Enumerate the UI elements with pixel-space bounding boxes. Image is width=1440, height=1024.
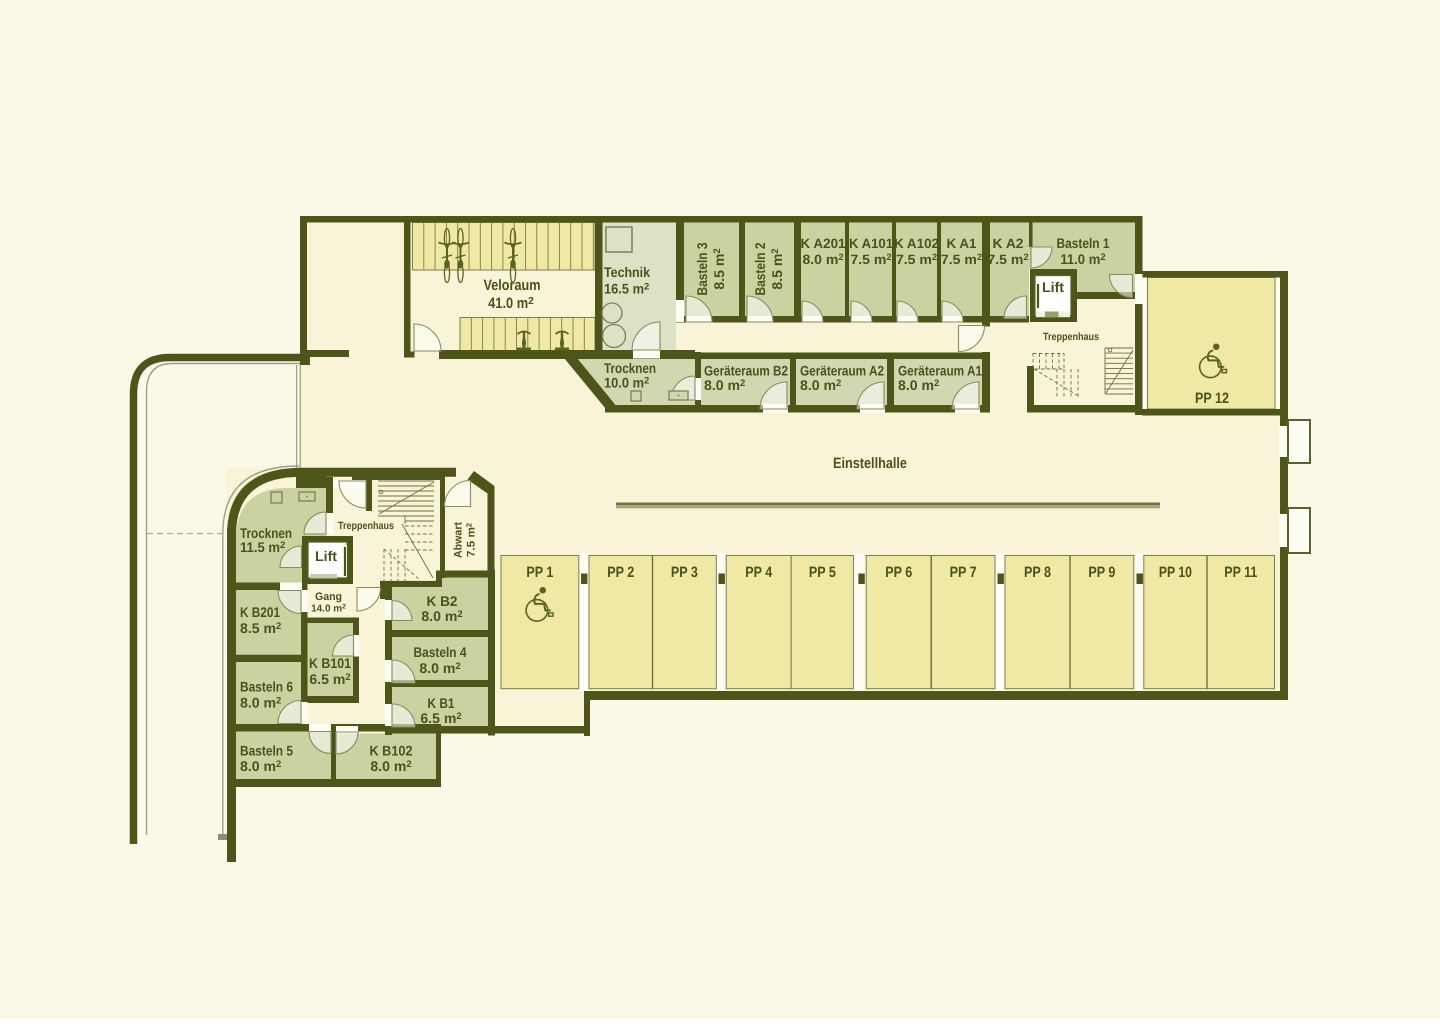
svg-text:8.0 m2: 8.0 m2 bbox=[800, 377, 841, 393]
svg-text:Basteln 4: Basteln 4 bbox=[414, 644, 467, 660]
svg-text:8.5 m2: 8.5 m2 bbox=[769, 248, 785, 289]
svg-text:K A101: K A101 bbox=[849, 236, 893, 251]
svg-text:Veloraum: Veloraum bbox=[484, 277, 541, 294]
svg-text:Technik: Technik bbox=[604, 264, 650, 280]
svg-text:PP 7: PP 7 bbox=[950, 564, 977, 581]
svg-text:PP 2: PP 2 bbox=[607, 564, 634, 581]
svg-text:11.0 m2: 11.0 m2 bbox=[1060, 251, 1105, 267]
svg-text:7.5 m2: 7.5 m2 bbox=[941, 252, 982, 267]
svg-text:8.0 m2: 8.0 m2 bbox=[240, 695, 281, 711]
svg-text:PP 1: PP 1 bbox=[526, 564, 553, 581]
svg-text:K A201: K A201 bbox=[801, 236, 846, 251]
svg-text:8.5 m2: 8.5 m2 bbox=[240, 620, 281, 636]
svg-text:Basteln 2: Basteln 2 bbox=[752, 242, 768, 295]
svg-text:PP 3: PP 3 bbox=[671, 564, 698, 581]
svg-text:11.5 m2: 11.5 m2 bbox=[240, 539, 285, 555]
svg-text:PP 8: PP 8 bbox=[1024, 564, 1051, 581]
svg-text:K A102: K A102 bbox=[894, 236, 939, 251]
svg-text:10.0 m2: 10.0 m2 bbox=[604, 375, 649, 391]
svg-text:Treppenhaus: Treppenhaus bbox=[1043, 331, 1099, 343]
svg-text:8.0 m2: 8.0 m2 bbox=[704, 377, 745, 393]
svg-text:Einstellhalle: Einstellhalle bbox=[833, 455, 907, 472]
svg-text:Treppenhaus: Treppenhaus bbox=[338, 520, 394, 532]
svg-text:PP 12: PP 12 bbox=[1195, 390, 1229, 407]
svg-text:6.5 m2: 6.5 m2 bbox=[420, 710, 461, 726]
svg-text:7.5 m2: 7.5 m2 bbox=[850, 252, 891, 267]
svg-text:7.5 m2: 7.5 m2 bbox=[987, 252, 1028, 267]
svg-text:K B1: K B1 bbox=[428, 695, 455, 711]
svg-text:K B201: K B201 bbox=[240, 604, 280, 620]
svg-text:7.5 m2: 7.5 m2 bbox=[464, 523, 477, 557]
svg-text:7.5 m2: 7.5 m2 bbox=[896, 252, 937, 267]
svg-text:PP 9: PP 9 bbox=[1088, 564, 1115, 581]
svg-text:K B101: K B101 bbox=[309, 655, 351, 671]
svg-text:Basteln 5: Basteln 5 bbox=[240, 743, 293, 759]
svg-text:K A1: K A1 bbox=[947, 236, 977, 251]
svg-text:8.0 m2: 8.0 m2 bbox=[802, 252, 843, 267]
svg-text:8.0 m2: 8.0 m2 bbox=[370, 758, 411, 774]
svg-text:8.0 m2: 8.0 m2 bbox=[421, 608, 462, 624]
svg-text:K B102: K B102 bbox=[370, 743, 413, 759]
svg-text:Basteln 1: Basteln 1 bbox=[1057, 235, 1110, 251]
svg-text:PP 4: PP 4 bbox=[745, 564, 773, 581]
svg-text:Lift: Lift bbox=[315, 548, 337, 564]
svg-text:8.0 m2: 8.0 m2 bbox=[240, 758, 281, 774]
svg-text:K A2: K A2 bbox=[993, 236, 1024, 251]
svg-text:Basteln 6: Basteln 6 bbox=[240, 679, 293, 695]
svg-text:8.0 m2: 8.0 m2 bbox=[419, 660, 460, 676]
svg-text:8.0 m2: 8.0 m2 bbox=[898, 377, 939, 393]
svg-text:PP 10: PP 10 bbox=[1159, 564, 1192, 581]
svg-text:Abwart: Abwart bbox=[453, 522, 465, 558]
svg-text:8.5 m2: 8.5 m2 bbox=[711, 248, 727, 289]
svg-text:6.5 m2: 6.5 m2 bbox=[309, 671, 350, 687]
svg-text:16.5 m2: 16.5 m2 bbox=[604, 281, 649, 297]
svg-text:K B2: K B2 bbox=[427, 593, 458, 609]
svg-text:Gang: Gang bbox=[315, 591, 342, 603]
svg-text:PP 5: PP 5 bbox=[809, 564, 836, 581]
svg-text:41.0 m2: 41.0 m2 bbox=[488, 295, 534, 312]
svg-text:Lift: Lift bbox=[1042, 279, 1064, 295]
svg-text:14.0 m2: 14.0 m2 bbox=[311, 604, 346, 615]
svg-text:PP 6: PP 6 bbox=[885, 564, 912, 581]
svg-text:Basteln 3: Basteln 3 bbox=[694, 242, 710, 295]
svg-text:PP 11: PP 11 bbox=[1224, 564, 1257, 581]
